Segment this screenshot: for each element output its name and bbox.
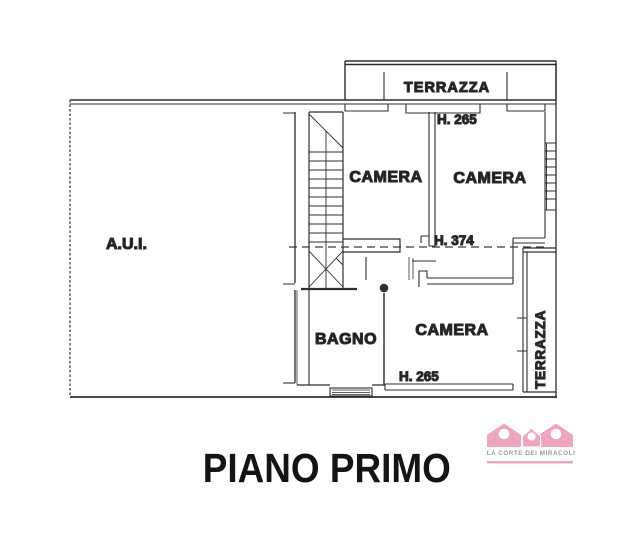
house-window (528, 433, 536, 441)
wall-segment (283, 113, 295, 284)
agency-logo-text: LA CORTE DEI MIRACOLI (486, 450, 576, 457)
wall-segment (385, 384, 513, 390)
wall-segment (523, 248, 556, 252)
agency-logo: LA CORTE DEI MIRACOLI (486, 421, 576, 465)
room-label-terrazza-top: TERRAZZA (404, 80, 490, 96)
house-window (551, 429, 562, 440)
door-jamb (421, 236, 435, 246)
wall-segment (429, 112, 435, 236)
house-window (499, 429, 510, 440)
room-label-camera-bottom: CAMERA (415, 322, 488, 339)
underline-bar (487, 461, 573, 463)
room-label-aui: A.U.I. (106, 236, 147, 253)
aui-walls (283, 112, 297, 385)
height-label-top: H. 265 (437, 112, 477, 127)
window-frame (545, 143, 556, 210)
three-houses-icon (486, 421, 576, 448)
height-label-middle: H. 374 (434, 233, 474, 248)
wall-segment (507, 104, 545, 111)
wall-segment (345, 104, 388, 111)
door-sill-ticks (517, 318, 527, 351)
room-label-camera-top-left: CAMERA (349, 169, 422, 186)
wall-segment (523, 248, 527, 392)
wall-segment (513, 238, 545, 284)
room-label-terrazza-right: TERRAZZA (533, 310, 548, 389)
bottom-walls (297, 384, 556, 396)
wall-segment (343, 239, 400, 252)
wall-segment (345, 61, 556, 65)
window-camera-right (545, 143, 556, 210)
door-hinge-dot (380, 284, 389, 293)
agency-logo-underline (486, 457, 576, 465)
wall-segment (427, 278, 513, 284)
staircase (301, 112, 357, 289)
room-label-bagno: BAGNO (315, 331, 377, 348)
height-label-bottom: H. 265 (399, 369, 439, 384)
room-label-camera-top-right: CAMERA (453, 170, 526, 187)
window-hatch (332, 390, 370, 395)
outer-walls (70, 64, 557, 398)
door-jamb (419, 271, 427, 287)
floorplan-page: TERRAZZA H. 265 CAMERA CAMERA H. 374 A.U… (0, 0, 636, 534)
